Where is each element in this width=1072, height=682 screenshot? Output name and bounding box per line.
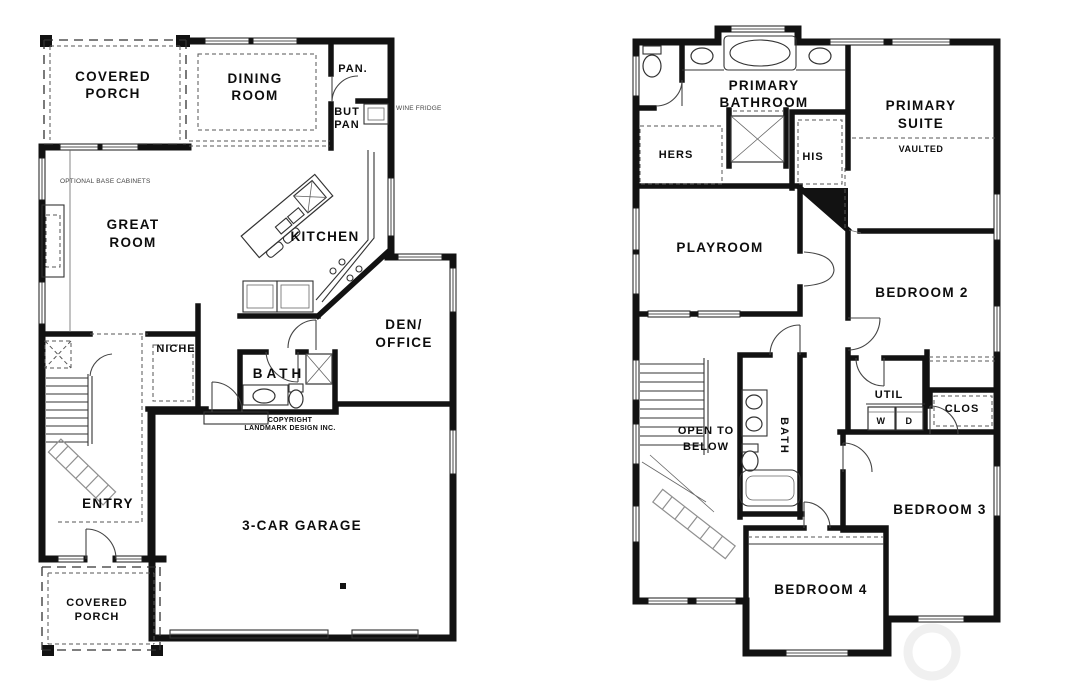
dryer-label: D [906, 416, 913, 426]
sink-icon [809, 48, 831, 64]
playroom-label: PLAYROOM [676, 240, 763, 255]
primary-bathroom-label: PRIMARY [729, 78, 800, 93]
bath-label: BATH [253, 366, 306, 381]
wine-fridge-label: WINE FRIDGE [396, 105, 442, 112]
pantry-label: PAN. [338, 63, 367, 75]
open-to-below-label: OPEN TO [678, 425, 734, 437]
clos-label: CLOS [945, 403, 980, 415]
porch-post [40, 35, 52, 47]
bedroom-4-label: BEDROOM 4 [774, 582, 867, 597]
copyright-label: COPYRIGHT [268, 417, 313, 424]
covered-porch-top-label: PORCH [85, 86, 140, 101]
butlers-pantry-label: BUT [334, 106, 360, 118]
porch-post [176, 35, 190, 47]
bathtub-icon [740, 470, 800, 506]
garage-post [340, 583, 346, 589]
great-room-label: ROOM [109, 235, 156, 250]
stairs-icon [45, 341, 116, 505]
covered-porch-top-label: COVERED [75, 69, 151, 84]
util-label: UTIL [875, 389, 903, 401]
floorplan-canvas: COVERED PORCH DINING ROOM PAN. BUT PAN W… [0, 0, 1072, 682]
hall-bath-fixtures [740, 390, 800, 506]
covered-porch-bottom-label: COVERED [66, 597, 127, 609]
great-room-label: GREAT [107, 217, 160, 232]
second-floor-dashed-lines [640, 111, 995, 544]
first-floor-plan: COVERED PORCH DINING ROOM PAN. BUT PAN W… [39, 35, 456, 656]
dining-room-label: DINING [227, 71, 282, 86]
french-doors [804, 252, 834, 286]
toilet-icon [289, 390, 303, 408]
bedroom-3-label: BEDROOM 3 [893, 502, 986, 517]
hers-label: HERS [659, 149, 694, 161]
entry-label: ENTRY [82, 496, 134, 511]
second-floor-plan: PRIMARY BATHROOM HERS HIS PRIMARY SUITE … [633, 26, 1000, 676]
second-floor-windows [633, 26, 1000, 656]
bath-label: BATH [778, 417, 790, 455]
butlers-pantry-label: PAN [334, 119, 359, 131]
open-to-below-label: BELOW [683, 441, 729, 453]
niche-label: NICHE [156, 343, 195, 355]
watermark-circle [908, 628, 956, 676]
his-label: HIS [802, 151, 823, 163]
primary-bathroom-label: BATHROOM [720, 95, 809, 110]
primary-suite-label: SUITE [898, 116, 944, 131]
first-floor-bath-fixtures [243, 354, 332, 408]
toilet-icon [643, 55, 661, 77]
optional-cabinets-label: OPTIONAL BASE CABINETS [60, 178, 151, 185]
vaulted-label: VAULTED [899, 144, 944, 154]
toilet-icon [742, 451, 758, 471]
den-office-label: DEN/ [385, 317, 422, 332]
kitchen-label: KITCHEN [290, 229, 359, 244]
washer-label: W [877, 416, 886, 426]
sink-icon [253, 389, 275, 403]
primary-suite-label: PRIMARY [886, 98, 957, 113]
covered-porch-bottom-label: PORCH [75, 611, 120, 623]
dining-room-label: ROOM [231, 88, 278, 103]
stairwell-icon [640, 358, 735, 559]
den-office-label: OFFICE [375, 335, 432, 350]
bedroom-2-label: BEDROOM 2 [875, 285, 968, 300]
bathtub-icon [724, 36, 796, 70]
sink-icon [746, 417, 762, 431]
garage-label: 3-CAR GARAGE [242, 518, 362, 533]
kitchen-island-icon [241, 174, 338, 263]
sink-icon [691, 48, 713, 64]
toilet-tank [643, 46, 661, 54]
laundry-fixtures [866, 404, 925, 430]
copyright-label: LANDMARK DESIGN INC. [244, 425, 335, 432]
sink-icon [746, 395, 762, 409]
